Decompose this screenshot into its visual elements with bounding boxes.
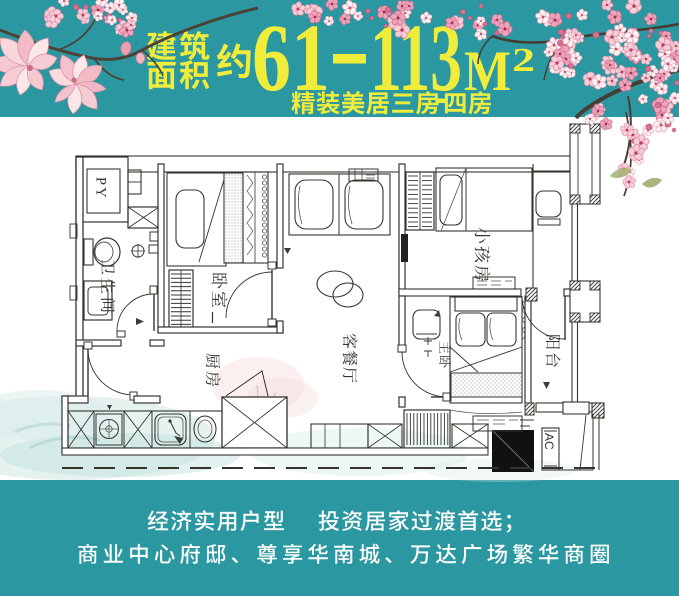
svg-text:AC: AC: [542, 433, 556, 450]
svg-text:2: 2: [512, 42, 535, 79]
svg-text:PY: PY: [93, 177, 109, 200]
